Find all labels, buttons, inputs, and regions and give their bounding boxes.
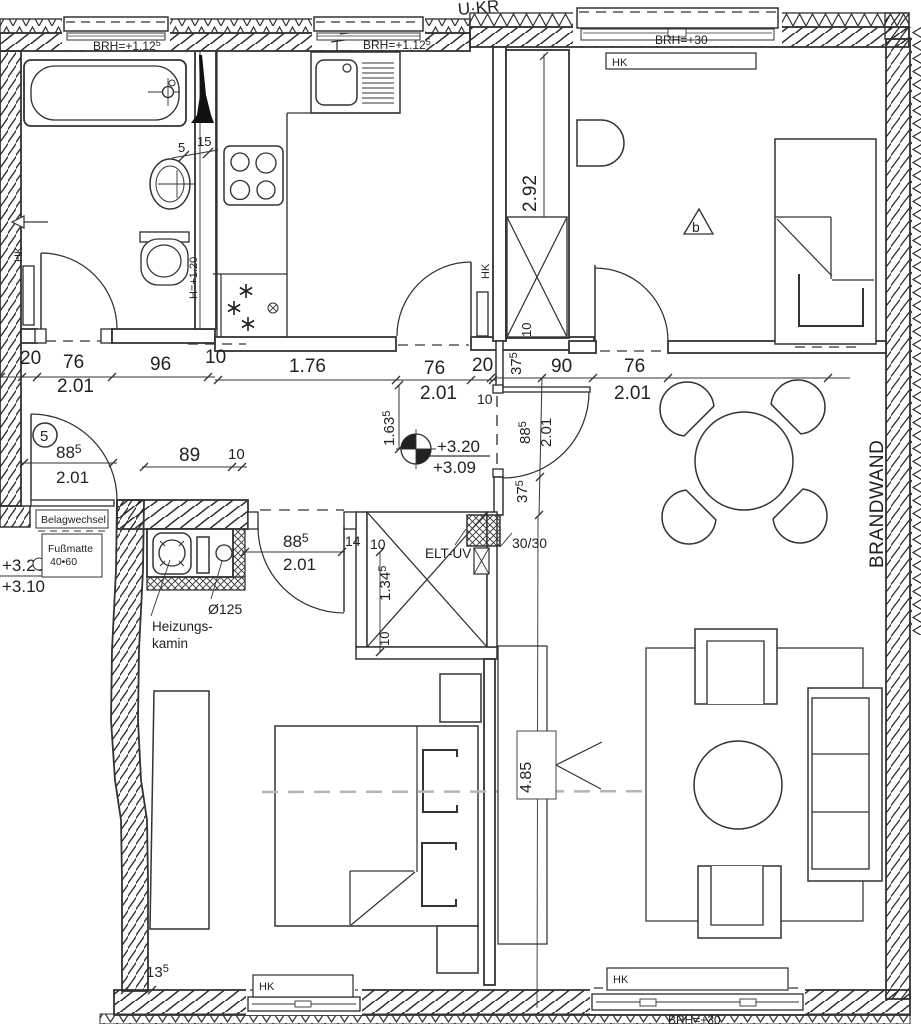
svg-text:10: 10 <box>477 391 493 407</box>
svg-text:20: 20 <box>20 348 41 369</box>
svg-text:89: 89 <box>179 445 200 466</box>
svg-text:ELT-UV: ELT-UV <box>425 546 471 561</box>
svg-text:+3.10: +3.10 <box>2 577 45 596</box>
svg-text:2.01: 2.01 <box>420 383 457 404</box>
svg-text:+3.20: +3.20 <box>437 437 480 456</box>
svg-text:20: 20 <box>472 355 493 376</box>
svg-text:2.92: 2.92 <box>520 175 541 212</box>
svg-text:Heizungs-: Heizungs- <box>152 619 213 634</box>
svg-text:4.85: 4.85 <box>518 762 535 793</box>
svg-text:BRH=+1.125: BRH=+1.125 <box>93 38 161 53</box>
svg-text:HK: HK <box>259 981 275 993</box>
svg-text:Fußmatte: Fußmatte <box>48 543 93 555</box>
svg-text:10: 10 <box>205 347 226 368</box>
svg-text:96: 96 <box>150 354 171 375</box>
svg-text:H=+1.20: H=+1.20 <box>188 257 200 299</box>
svg-text:5: 5 <box>40 428 48 445</box>
svg-text:76: 76 <box>624 356 645 377</box>
svg-text:15: 15 <box>197 134 211 149</box>
svg-text:10: 10 <box>519 323 534 337</box>
svg-text:HK: HK <box>13 246 25 262</box>
svg-text:30/30: 30/30 <box>512 535 547 551</box>
svg-text:76: 76 <box>63 352 84 373</box>
svg-text:2.01: 2.01 <box>56 468 89 487</box>
svg-text:2.01: 2.01 <box>57 376 94 397</box>
svg-text:2.01: 2.01 <box>614 383 651 404</box>
svg-text:kamin: kamin <box>152 636 188 651</box>
svg-text:10: 10 <box>370 536 386 552</box>
svg-text:b: b <box>692 219 700 235</box>
svg-text:+3.09: +3.09 <box>433 458 476 477</box>
svg-text:BRH=+30: BRH=+30 <box>668 1013 721 1024</box>
svg-text:14: 14 <box>345 533 361 549</box>
svg-text:HK: HK <box>480 263 492 279</box>
svg-text:1.76: 1.76 <box>289 356 326 377</box>
svg-text:40•60: 40•60 <box>50 556 77 568</box>
svg-text:76: 76 <box>424 358 445 379</box>
svg-text:10: 10 <box>228 446 245 463</box>
svg-text:5: 5 <box>178 140 185 155</box>
svg-text:10: 10 <box>377 632 392 646</box>
svg-text:HK: HK <box>612 57 628 69</box>
svg-text:BRH=+30: BRH=+30 <box>655 33 708 47</box>
svg-text:Ø125: Ø125 <box>208 601 242 617</box>
svg-text:90: 90 <box>551 356 572 377</box>
svg-text:Belagwechsel: Belagwechsel <box>41 514 106 526</box>
svg-text:BRANDWAND: BRANDWAND <box>867 440 888 568</box>
svg-text:BRH=+1.125: BRH=+1.125 <box>363 37 431 52</box>
svg-text:HK: HK <box>613 974 629 986</box>
svg-text:2.01: 2.01 <box>538 418 555 447</box>
svg-text:2.01: 2.01 <box>283 555 316 574</box>
